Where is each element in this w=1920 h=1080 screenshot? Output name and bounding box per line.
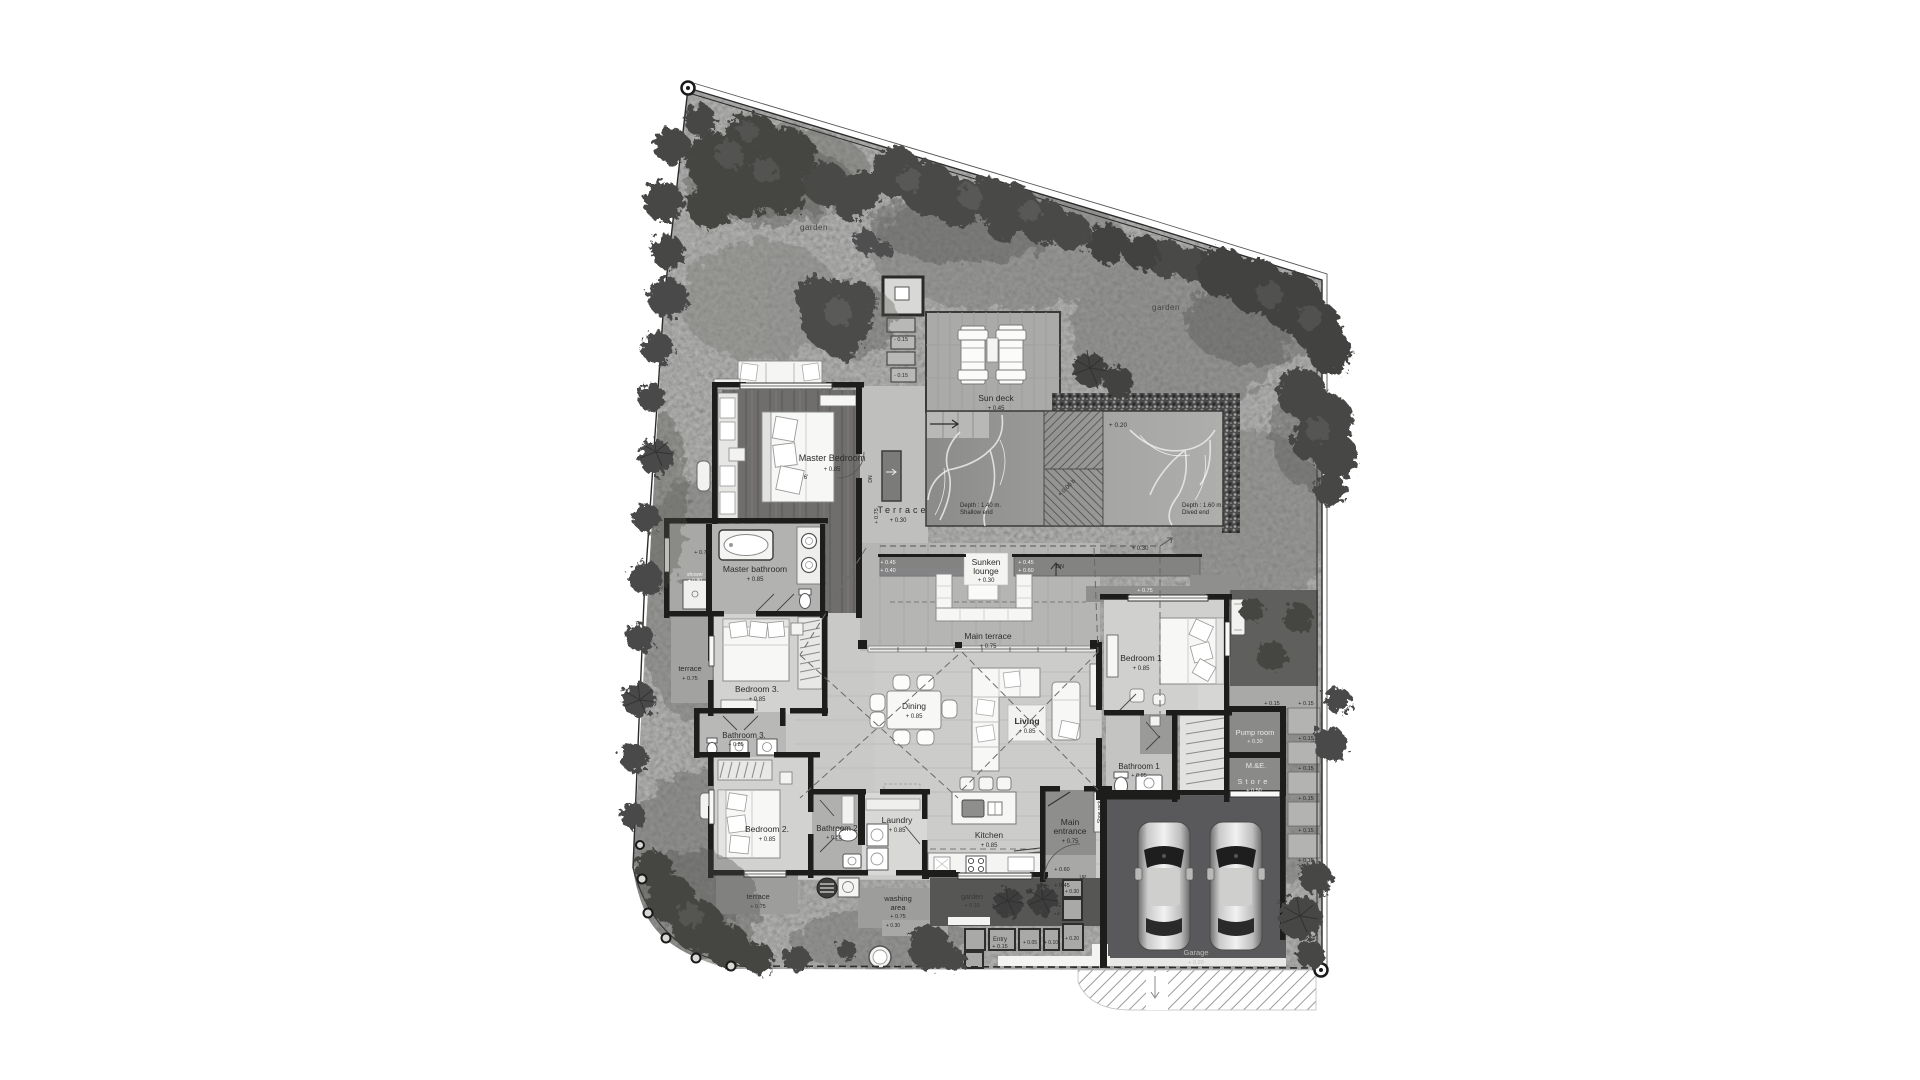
svg-text:+ 0.20: + 0.20: [1188, 960, 1203, 966]
svg-text:Bathroom 2.: Bathroom 2.: [816, 824, 860, 833]
svg-text:+ 0.75: + 0.75: [682, 676, 697, 682]
svg-text:garden: garden: [1152, 303, 1180, 312]
svg-text:Main terrace: Main terrace: [964, 631, 1012, 641]
svg-text:Dived end: Dived end: [1182, 510, 1209, 516]
svg-text:Sun deck: Sun deck: [978, 393, 1014, 403]
svg-text:+ 0.85: + 0.85: [1131, 773, 1146, 779]
svg-text:+ 0.45: + 0.45: [988, 406, 1006, 412]
svg-text:+ 0.85: + 0.85: [1133, 666, 1151, 672]
svg-text:+ 0.20: + 0.20: [1109, 422, 1128, 429]
svg-text:+ 0.30: + 0.30: [886, 923, 900, 929]
svg-text:+ 0.75: + 0.75: [694, 550, 709, 556]
svg-text:+ 0.30: + 0.30: [890, 518, 908, 524]
svg-text:Shallow end: Shallow end: [960, 510, 993, 516]
svg-text:Depth : 1.40 m.: Depth : 1.40 m.: [960, 503, 1001, 509]
svg-text:M.&E.: M.&E.: [1246, 761, 1266, 770]
svg-text:+ 0.75: + 0.75: [890, 914, 905, 920]
svg-text:Shoe rack: Shoe rack: [1097, 800, 1103, 823]
svg-text:+ 0.85: + 0.85: [759, 837, 777, 843]
svg-text:garden: garden: [961, 894, 983, 901]
svg-text:Bathroom 1: Bathroom 1: [1118, 762, 1160, 771]
svg-text:+ 0.20: + 0.20: [1065, 936, 1079, 942]
svg-text:+ 0.85: + 0.85: [1019, 729, 1037, 735]
svg-text:Dining: Dining: [902, 701, 926, 711]
svg-text:+ 0.30: + 0.30: [978, 578, 996, 584]
svg-text:+ 0.85: + 0.85: [826, 835, 841, 841]
svg-text:Bedroom 1: Bedroom 1: [1120, 653, 1162, 663]
svg-text:Living: Living: [1014, 716, 1039, 726]
svg-text:Entry: Entry: [993, 937, 1007, 943]
svg-text:Garage: Garage: [1183, 948, 1208, 957]
svg-text:Bedroom 2.: Bedroom 2.: [745, 824, 789, 834]
svg-text:Store: Store: [1238, 777, 1271, 786]
svg-text:+ 0.75: + 0.75: [980, 644, 998, 650]
svg-text:Laundry: Laundry: [882, 815, 913, 825]
svg-text:DN: DN: [868, 475, 874, 483]
svg-text:+ 0.75: + 0.75: [1137, 588, 1152, 594]
svg-text:+ 0.15: + 0.15: [1298, 828, 1313, 834]
svg-text:lounge: lounge: [973, 566, 999, 576]
svg-text:+ 0.40: + 0.40: [880, 568, 895, 574]
svg-text:+ 0.30: + 0.30: [1247, 739, 1262, 745]
svg-text:- 0.15: - 0.15: [894, 373, 908, 379]
svg-text:+ 0.85: + 0.85: [981, 843, 999, 849]
svg-text:+ 0.30: + 0.30: [1065, 889, 1079, 895]
svg-text:+ 0.85: + 0.85: [749, 697, 767, 703]
svg-text:+ 0.50: + 0.50: [1246, 788, 1261, 794]
svg-text:Kitchen: Kitchen: [975, 830, 1004, 840]
svg-text:+ 0.60: + 0.60: [1018, 568, 1033, 574]
svg-text:+ 0.45: + 0.45: [1018, 560, 1033, 566]
svg-text:+ 0.85: + 0.85: [906, 714, 924, 720]
svg-text:- 0.15: - 0.15: [894, 337, 908, 343]
svg-text:+ 0.15: + 0.15: [992, 944, 1007, 950]
svg-text:+ 0.75: + 0.75: [1062, 839, 1080, 845]
svg-text:+ 0.45: + 0.45: [880, 560, 895, 566]
svg-text:Master Bedroom: Master Bedroom: [799, 453, 866, 463]
svg-text:+ 0.15: + 0.15: [1298, 796, 1313, 802]
svg-text:+ 0.05: + 0.05: [1023, 940, 1037, 946]
svg-text:6': 6': [804, 475, 808, 481]
svg-text:entrance: entrance: [1053, 826, 1086, 836]
svg-text:+ 0.15: + 0.15: [1298, 701, 1313, 707]
svg-text:Pump room: Pump room: [1236, 728, 1275, 737]
svg-text:+ 0.10: + 0.10: [1044, 940, 1058, 946]
svg-text:Bathroom 3.: Bathroom 3.: [722, 731, 766, 740]
svg-text:+ 0.80: + 0.80: [688, 578, 702, 584]
svg-text:+ 0.15: + 0.15: [1298, 766, 1313, 772]
svg-text:Depth : 1.60 m.: Depth : 1.60 m.: [1182, 503, 1223, 509]
svg-text:+ 0.85: + 0.85: [747, 577, 765, 583]
svg-text:+ 0.60: + 0.60: [1054, 867, 1069, 873]
svg-text:DN: DN: [1056, 564, 1064, 570]
svg-text:terrace: terrace: [678, 664, 701, 673]
svg-text:+ 0.10: + 0.10: [964, 903, 979, 909]
svg-text:garden: garden: [800, 223, 828, 232]
svg-text:+ 0.15: + 0.15: [1298, 736, 1313, 742]
svg-text:Bedroom 3.: Bedroom 3.: [735, 684, 779, 694]
svg-text:+ 0.85: + 0.85: [728, 742, 743, 748]
svg-text:Master bathroom: Master bathroom: [723, 564, 787, 574]
svg-text:+ 0.30: + 0.30: [1132, 546, 1150, 552]
svg-text:+ 0.15: + 0.15: [1264, 701, 1279, 707]
svg-text:UP: UP: [1080, 875, 1088, 881]
svg-text:area: area: [890, 903, 906, 912]
svg-text:Terrace: Terrace: [877, 505, 928, 515]
svg-text:+ 0.85: + 0.85: [824, 467, 842, 473]
svg-text:washing: washing: [883, 894, 912, 903]
svg-text:+ 0.85: + 0.85: [889, 828, 907, 834]
svg-text:+ 0.75: + 0.75: [874, 508, 880, 523]
